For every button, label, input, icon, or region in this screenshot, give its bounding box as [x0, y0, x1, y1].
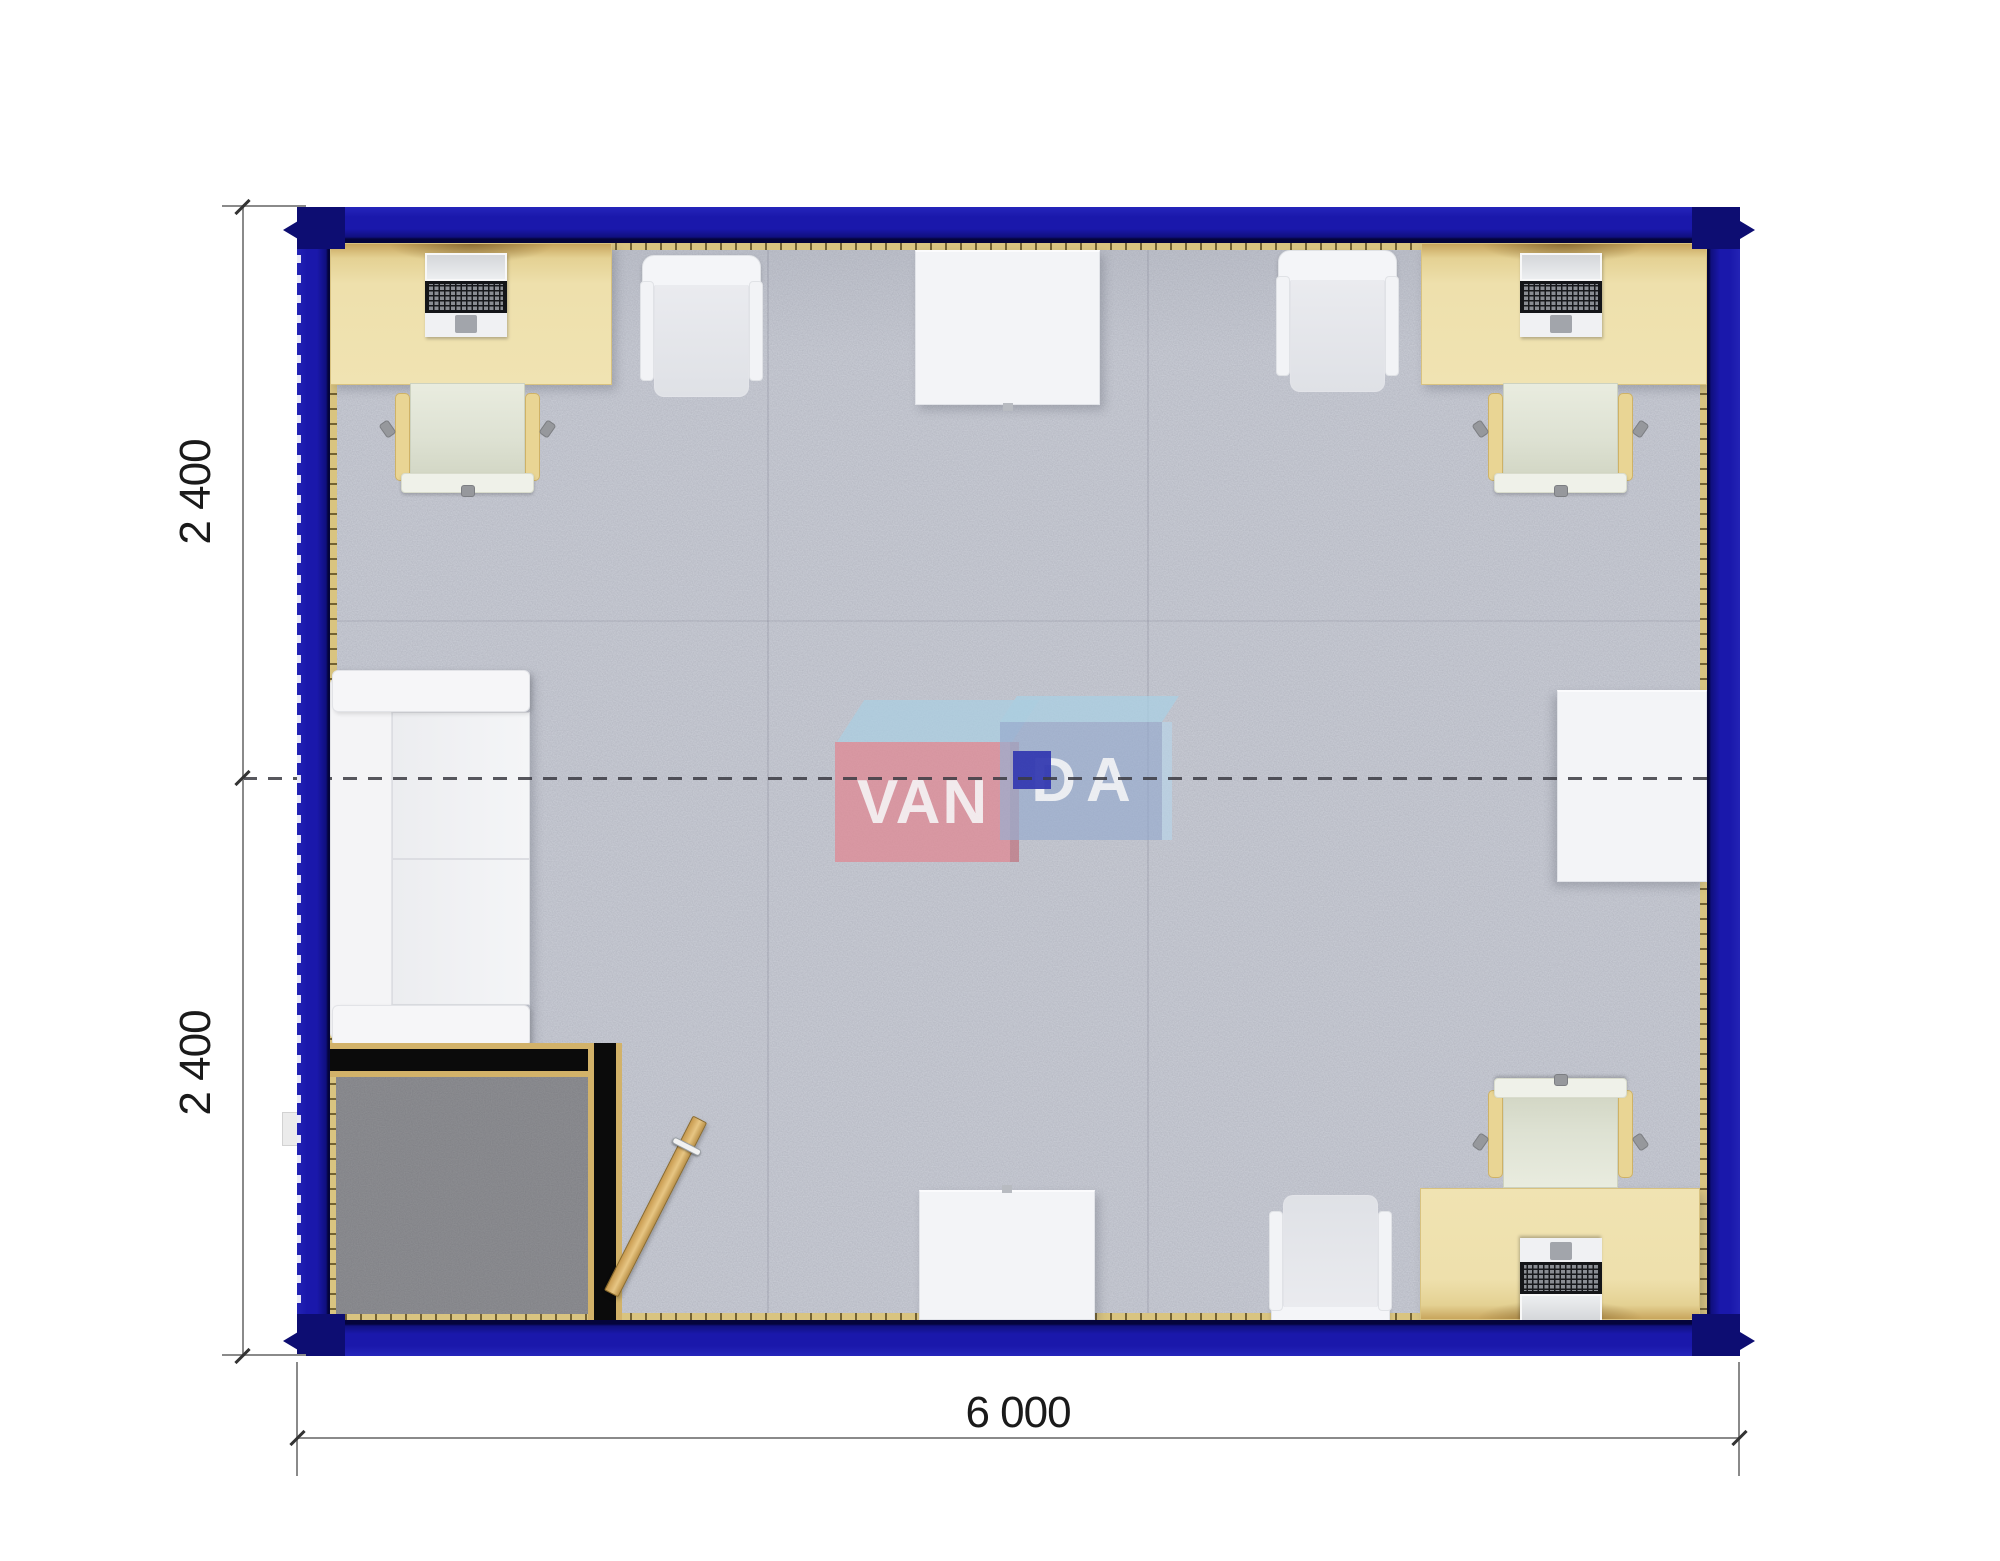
chair-armrest-right	[1385, 276, 1399, 376]
visitor-chair-top-right	[1276, 250, 1399, 392]
logo-text-van: VAN	[837, 753, 1009, 853]
sofa-armrest-bottom	[332, 1005, 530, 1047]
logo-square-icon	[1013, 751, 1051, 789]
extension-line-bottom-left	[222, 1354, 306, 1356]
laptop-keys	[1524, 1265, 1598, 1291]
laptop-keys	[1524, 284, 1598, 310]
corner-tab-icon	[283, 1332, 298, 1350]
exterior-door-step	[282, 1112, 298, 1146]
laptop-bottom-right	[1520, 1238, 1602, 1322]
module-centerline	[243, 777, 1740, 780]
laptop-lid	[1520, 253, 1602, 281]
laptop-top-left	[425, 253, 507, 337]
chair-seat	[1290, 280, 1385, 392]
chair-armrest-right	[1618, 393, 1633, 481]
chair-armrest-left	[1488, 1090, 1503, 1178]
chair-caster	[1554, 485, 1568, 497]
vestibule-carpet	[336, 1077, 588, 1314]
wall-top	[297, 207, 1740, 243]
office-chair-top-left	[395, 383, 540, 497]
vanda-logo: VAN DA	[815, 693, 1185, 878]
table-leg	[1002, 1185, 1012, 1193]
laptop-trackpad	[1550, 1242, 1572, 1260]
laptop-trackpad	[455, 315, 477, 333]
sofa	[328, 670, 530, 1047]
visitor-chair-bottom	[1269, 1195, 1392, 1337]
corner-casting-top-left	[297, 207, 345, 249]
sofa-armrest-top	[332, 670, 530, 712]
laptop-keys	[429, 284, 503, 310]
chair-armrest-left	[395, 393, 410, 481]
sofa-cushion	[392, 859, 530, 1005]
wall-right	[1707, 207, 1740, 1356]
logo-box-top-face	[1000, 696, 1179, 722]
chair-seat	[1283, 1195, 1378, 1307]
chair-armrest-right	[1378, 1211, 1392, 1311]
sofa-cushion	[392, 712, 530, 859]
visitor-chair-top-left	[640, 255, 763, 397]
table-bottom-center	[919, 1190, 1095, 1320]
extension-line-bottom-b	[1738, 1362, 1740, 1476]
corner-casting-top-right	[1692, 207, 1740, 249]
dimension-label-left-top: 2 400	[171, 392, 219, 592]
corner-tab-icon	[283, 221, 298, 239]
partition-wall-horizontal	[330, 1043, 622, 1077]
corner-casting-bottom-left	[297, 1314, 345, 1356]
laptop-trackpad	[1550, 315, 1572, 333]
chair-caster	[461, 485, 475, 497]
corner-tab-icon	[1740, 1332, 1755, 1350]
laptop-lid	[425, 253, 507, 281]
chair-armrest-right	[1618, 1090, 1633, 1178]
corner-casting-bottom-right	[1692, 1314, 1740, 1356]
sofa-backrest	[330, 678, 392, 1039]
laptop-lid	[1520, 1294, 1602, 1322]
table-leg	[1003, 403, 1013, 411]
wall-left-panel-dashes	[297, 255, 301, 1310]
chair-armrest-left	[640, 281, 654, 381]
chair-seat	[410, 383, 525, 479]
chair-caster	[1554, 1074, 1568, 1086]
dimension-line-left	[242, 207, 244, 1356]
chair-armrest-left	[1488, 393, 1503, 481]
chair-armrest-left	[1276, 276, 1290, 376]
chair-armrest-right	[749, 281, 763, 381]
office-chair-top-right	[1488, 383, 1633, 497]
table-top-center	[915, 250, 1100, 405]
dimension-line-bottom	[297, 1437, 1740, 1439]
chair-seat	[1503, 1092, 1618, 1188]
extension-line-bottom-a	[296, 1362, 298, 1476]
corner-tab-icon	[1740, 221, 1755, 239]
office-chair-bottom-right	[1488, 1074, 1633, 1188]
dimension-label-left-bottom: 2 400	[171, 963, 219, 1163]
wall-left	[297, 207, 330, 1356]
logo-blue-box-side	[1162, 722, 1172, 840]
extension-line-top-left	[222, 205, 306, 207]
floor-plan-canvas: VAN DA 2 400 2 400 6 000	[0, 0, 2000, 1561]
chair-seat	[654, 285, 749, 397]
chair-seat	[1503, 383, 1618, 479]
wall-bottom	[297, 1320, 1740, 1356]
chair-armrest-right	[525, 393, 540, 481]
laptop-top-right	[1520, 253, 1602, 337]
table-right-wall	[1557, 690, 1707, 882]
dimension-label-bottom: 6 000	[918, 1388, 1118, 1436]
chair-armrest-left	[1269, 1211, 1283, 1311]
